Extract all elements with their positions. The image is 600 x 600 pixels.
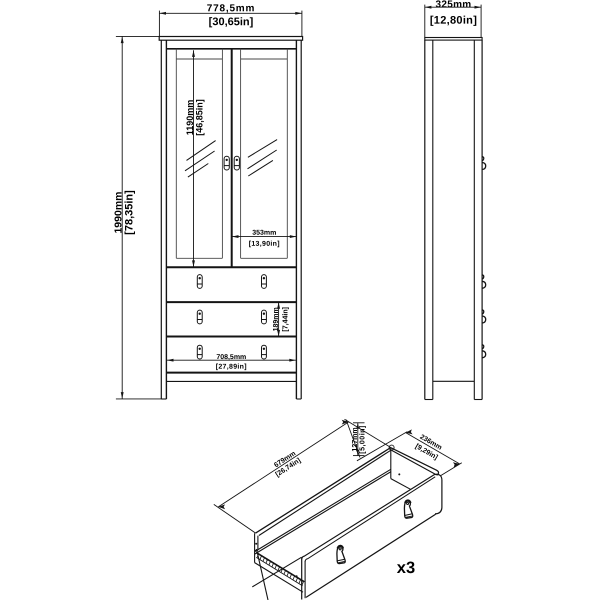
svg-text:189mm: 189mm bbox=[273, 307, 280, 331]
svg-text:353mm: 353mm bbox=[252, 230, 276, 237]
svg-text:[13,90in]: [13,90in] bbox=[249, 241, 280, 248]
svg-text:325mm: 325mm bbox=[436, 0, 472, 10]
svg-text:x3: x3 bbox=[397, 559, 415, 577]
svg-text:[5,00in]: [5,00in] bbox=[360, 425, 367, 454]
svg-text:127mm: 127mm bbox=[352, 427, 359, 451]
svg-text:[12,80in]: [12,80in] bbox=[430, 15, 477, 27]
svg-text:[30,65in]: [30,65in] bbox=[209, 16, 254, 28]
svg-text:[78,35in]: [78,35in] bbox=[124, 190, 136, 235]
svg-text:778,5mm: 778,5mm bbox=[207, 3, 255, 14]
svg-text:[27,89in]: [27,89in] bbox=[216, 364, 247, 371]
svg-text:[7,44in]: [7,44in] bbox=[282, 307, 289, 332]
svg-text:[46,85in]: [46,85in] bbox=[194, 99, 204, 136]
